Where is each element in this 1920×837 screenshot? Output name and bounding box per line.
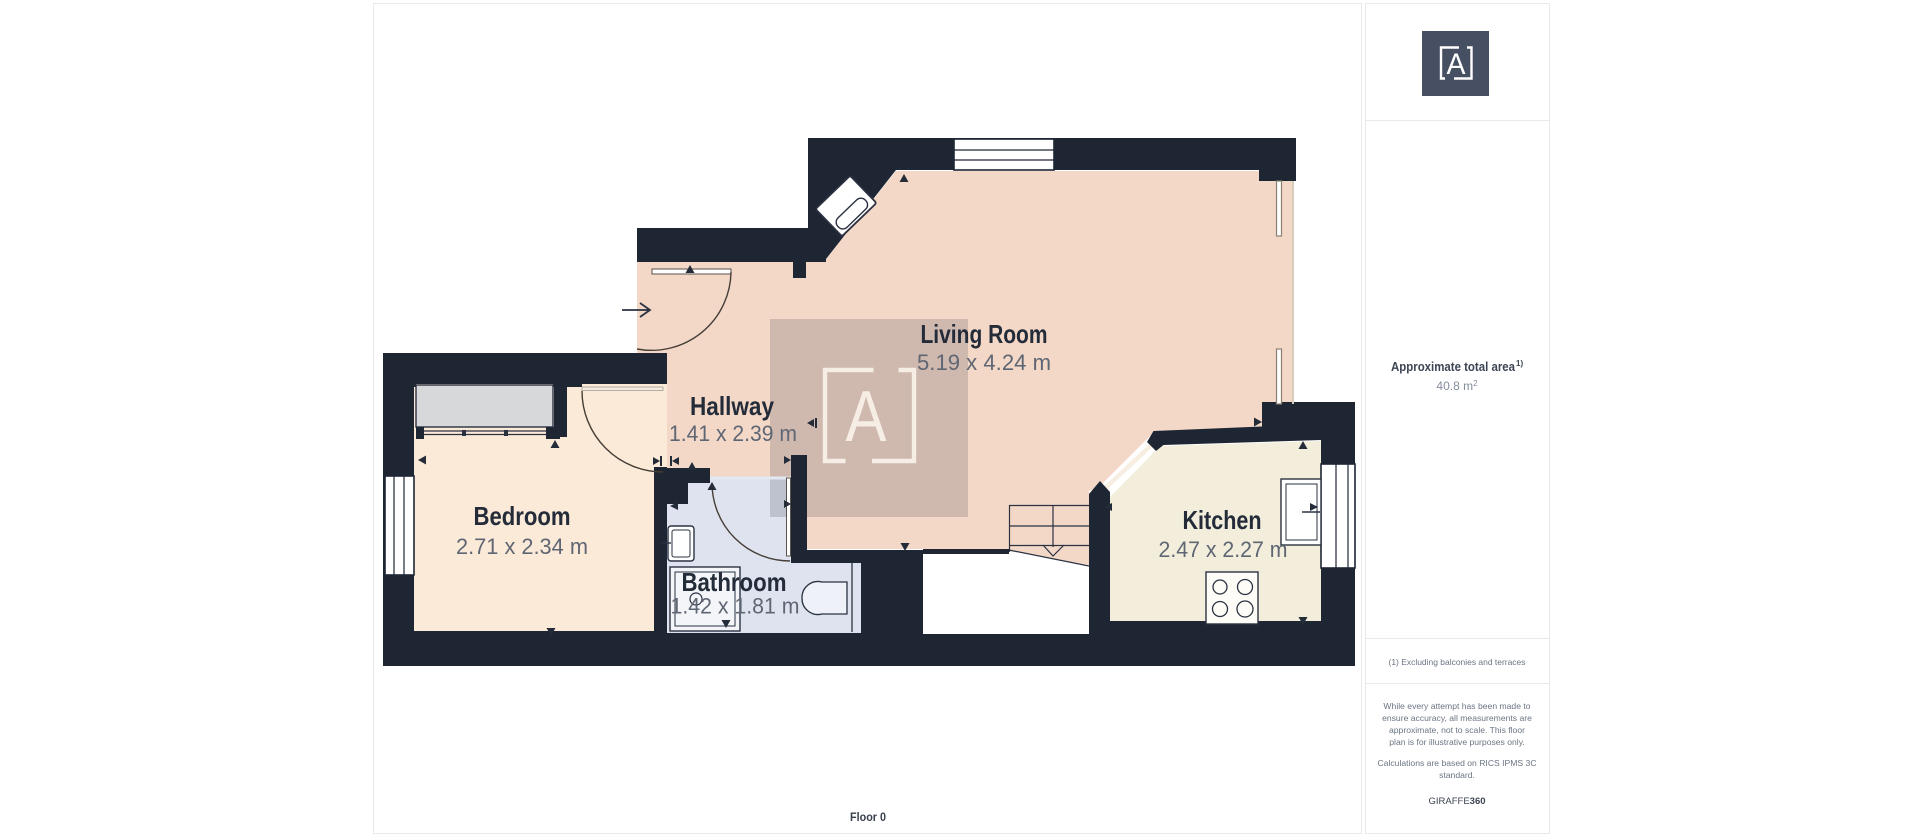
svg-text:Hallway: Hallway: [690, 391, 774, 421]
svg-text:GIRAFFE360: GIRAFFE360: [1428, 796, 1485, 807]
svg-text:Approximate total area: Approximate total area: [1391, 359, 1516, 374]
svg-text:(1) Excluding balconies and te: (1) Excluding balconies and terraces: [1389, 657, 1526, 667]
svg-text:plan is for illustrative purpo: plan is for illustrative purposes only.: [1389, 737, 1525, 747]
svg-text:Floor 0: Floor 0: [850, 810, 886, 824]
svg-text:standard.: standard.: [1439, 770, 1475, 780]
svg-text:ensure accuracy, all measureme: ensure accuracy, all measurements are: [1382, 713, 1532, 723]
svg-text:1): 1): [1516, 359, 1523, 368]
svg-text:approximate, not to scale. Thi: approximate, not to scale. This floor: [1389, 725, 1525, 735]
svg-text:Kitchen: Kitchen: [1183, 505, 1262, 535]
svg-text:2.71 x 2.34 m: 2.71 x 2.34 m: [456, 534, 588, 559]
svg-text:Bedroom: Bedroom: [474, 501, 571, 531]
svg-text:40.8 m2: 40.8 m2: [1436, 379, 1478, 393]
svg-text:Calculations are based on RICS: Calculations are based on RICS IPMS 3C: [1377, 758, 1536, 768]
svg-text:A: A: [1447, 48, 1466, 81]
svg-text:While every attempt has been m: While every attempt has been made to: [1383, 701, 1530, 711]
svg-text:A: A: [846, 377, 887, 457]
svg-text:1.41 x 2.39 m: 1.41 x 2.39 m: [669, 421, 797, 446]
svg-text:2.47 x 2.27 m: 2.47 x 2.27 m: [1159, 537, 1288, 562]
svg-text:5.19 x 4.24 m: 5.19 x 4.24 m: [917, 350, 1051, 375]
svg-text:1.42 x 1.81 m: 1.42 x 1.81 m: [671, 594, 800, 619]
svg-text:Living Room: Living Room: [921, 319, 1048, 349]
svg-text:Bathroom: Bathroom: [682, 567, 787, 597]
